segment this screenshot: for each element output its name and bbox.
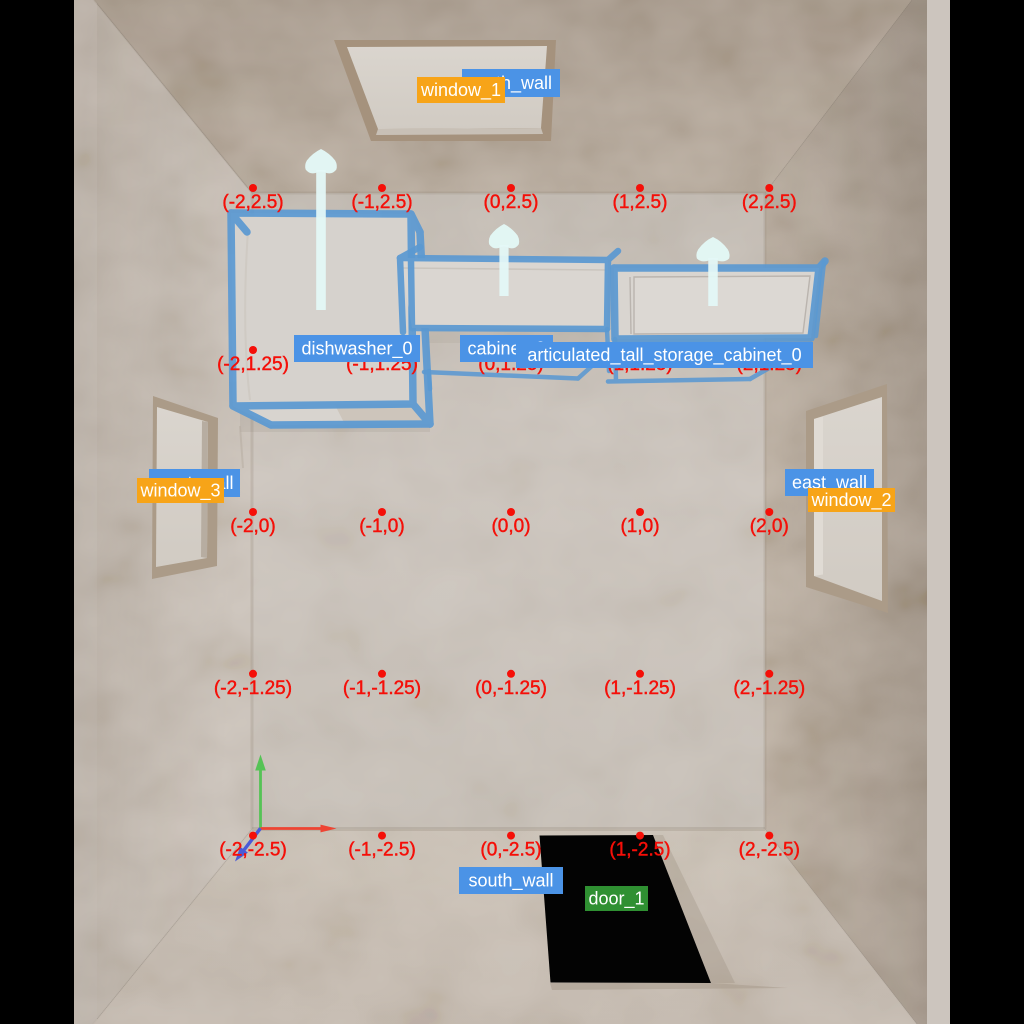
svg-text:(-1,0): (-1,0) [359,516,404,537]
svg-text:(2,-1.25): (2,-1.25) [733,678,805,699]
svg-text:(0,0): (0,0) [491,516,530,537]
svg-text:(2,-2.5): (2,-2.5) [739,840,800,861]
svg-text:(1,2.5): (1,2.5) [613,192,668,213]
svg-text:(-1,-1.25): (-1,-1.25) [343,678,421,699]
svg-text:window_2: window_2 [810,490,891,511]
svg-text:window_3: window_3 [139,481,220,502]
svg-text:articulated_tall_storage_cabin: articulated_tall_storage_cabinet_0 [527,345,801,366]
svg-text:(1,0): (1,0) [620,516,659,537]
svg-text:(-1,-2.5): (-1,-2.5) [348,840,416,861]
svg-text:(2,2.5): (2,2.5) [742,192,797,213]
svg-text:door_1: door_1 [588,889,644,910]
svg-text:(0,-1.25): (0,-1.25) [475,678,547,699]
svg-text:(-2,0): (-2,0) [230,516,275,537]
svg-text:(0,-2.5): (0,-2.5) [480,840,541,861]
svg-text:(-2,2.5): (-2,2.5) [222,192,283,213]
svg-text:(-1,2.5): (-1,2.5) [351,192,412,213]
svg-text:(-2,-1.25): (-2,-1.25) [214,678,292,699]
svg-text:(1,-2.5): (1,-2.5) [609,840,670,861]
svg-text:window_1: window_1 [420,80,501,101]
svg-text:(-2,1.25): (-2,1.25) [217,354,289,375]
svg-text:(1,-1.25): (1,-1.25) [604,678,676,699]
svg-text:dishwasher_0: dishwasher_0 [301,339,412,360]
svg-text:(0,2.5): (0,2.5) [484,192,539,213]
svg-text:(-2,-2.5): (-2,-2.5) [219,840,287,861]
svg-text:(2,0): (2,0) [750,516,789,537]
svg-text:south_wall: south_wall [468,871,553,892]
